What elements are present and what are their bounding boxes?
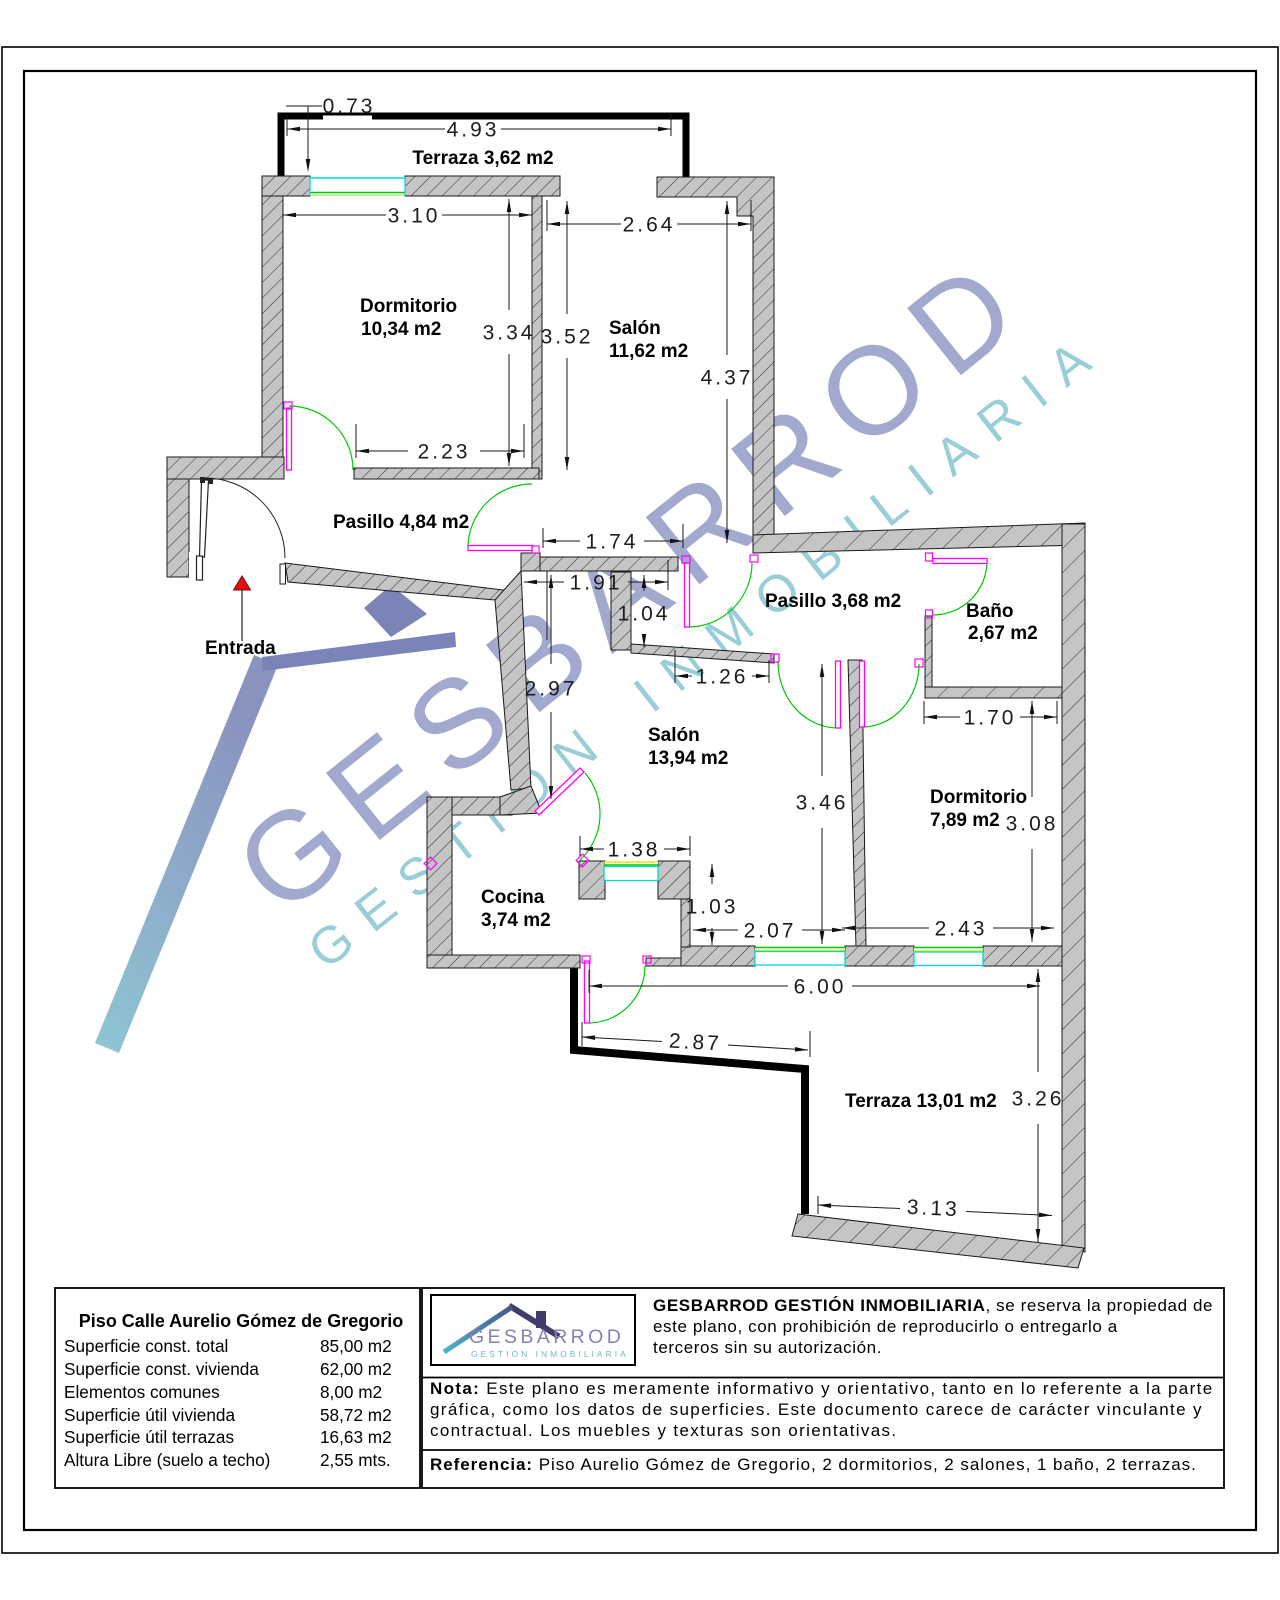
svg-text:Dormitorio: Dormitorio xyxy=(930,787,1027,808)
svg-text:1.04: 1.04 xyxy=(618,603,671,626)
svg-text:1.03: 1.03 xyxy=(686,896,739,919)
svg-text:Dormitorio: Dormitorio xyxy=(360,296,457,317)
svg-text:2.64: 2.64 xyxy=(623,214,676,237)
svg-text:85,00 m2: 85,00 m2 xyxy=(320,1336,392,1356)
svg-text:Superficie const. total: Superficie const. total xyxy=(64,1336,228,1356)
svg-text:3.46: 3.46 xyxy=(796,792,849,815)
svg-text:1.38: 1.38 xyxy=(608,839,661,862)
svg-text:2.97: 2.97 xyxy=(525,678,578,701)
svg-text:3.08: 3.08 xyxy=(1006,813,1059,836)
svg-text:2.87: 2.87 xyxy=(668,1030,722,1056)
svg-text:2.07: 2.07 xyxy=(744,920,797,943)
svg-text:Baño: Baño xyxy=(966,601,1014,622)
svg-text:Salón: Salón xyxy=(648,725,700,746)
svg-text:3.34: 3.34 xyxy=(483,322,536,345)
svg-text:Salón: Salón xyxy=(609,318,661,339)
svg-text:3.13: 3.13 xyxy=(906,1196,960,1221)
svg-text:GESTIÓN INMOBILIARIA: GESTIÓN INMOBILIARIA xyxy=(471,1349,629,1359)
svg-text:GESBARROD GESTIÓN INMOBILIARIA: GESBARROD GESTIÓN INMOBILIARIA, se reser… xyxy=(653,1296,1213,1315)
svg-text:16,63 m2: 16,63 m2 xyxy=(320,1427,392,1447)
svg-text:Cocina: Cocina xyxy=(481,887,545,908)
svg-text:1.26: 1.26 xyxy=(696,666,749,689)
svg-text:este plano, con prohibición de: este plano, con prohibición de reproduci… xyxy=(653,1317,1118,1336)
svg-text:2,55 mts.: 2,55 mts. xyxy=(320,1450,391,1470)
svg-text:3.52: 3.52 xyxy=(541,326,594,349)
svg-text:Superficie útil vivienda: Superficie útil vivienda xyxy=(64,1405,235,1425)
svg-text:Terraza 13,01 m2: Terraza 13,01 m2 xyxy=(845,1091,997,1112)
svg-text:GESBARROD: GESBARROD xyxy=(469,1326,624,1348)
svg-text:Piso Calle Aurelio Gómez de Gr: Piso Calle Aurelio Gómez de Gregorio xyxy=(79,1311,403,1331)
svg-text:Superficie const. vivienda: Superficie const. vivienda xyxy=(64,1359,259,1379)
svg-text:8,00 m2: 8,00 m2 xyxy=(320,1382,382,1402)
svg-text:10,34 m2: 10,34 m2 xyxy=(361,319,441,340)
svg-text:Nota: Este plano es meramente: Nota: Este plano es meramente informativ… xyxy=(430,1379,1214,1398)
svg-text:0.73: 0.73 xyxy=(323,95,376,118)
svg-text:2,67 m2: 2,67 m2 xyxy=(968,623,1038,644)
svg-text:4.37: 4.37 xyxy=(701,367,754,390)
svg-text:Superficie útil terrazas: Superficie útil terrazas xyxy=(64,1427,234,1447)
svg-text:2.23: 2.23 xyxy=(418,441,471,464)
svg-text:13,94 m2: 13,94 m2 xyxy=(648,748,728,769)
svg-text:3,74 m2: 3,74 m2 xyxy=(481,910,551,931)
svg-text:Terraza 3,62 m2: Terraza 3,62 m2 xyxy=(412,148,553,169)
svg-text:1.74: 1.74 xyxy=(586,531,639,554)
svg-text:Pasillo 3,68 m2: Pasillo 3,68 m2 xyxy=(765,591,901,612)
svg-text:62,00 m2: 62,00 m2 xyxy=(320,1359,392,1379)
svg-text:58,72 m2: 58,72 m2 xyxy=(320,1405,392,1425)
svg-text:Pasillo 4,84 m2: Pasillo 4,84 m2 xyxy=(333,512,469,533)
svg-text:11,62 m2: 11,62 m2 xyxy=(609,341,688,362)
svg-text:7,89 m2: 7,89 m2 xyxy=(930,810,1000,831)
svg-text:Referencia: Piso Aurelio Gómez: Referencia: Piso Aurelio Gómez de Gregor… xyxy=(430,1455,1197,1474)
svg-text:1.70: 1.70 xyxy=(964,707,1017,730)
svg-text:gráfica, como los datos de sup: gráfica, como los datos de superficies. … xyxy=(430,1400,1203,1419)
svg-text:6.00: 6.00 xyxy=(794,976,847,999)
svg-text:Entrada: Entrada xyxy=(205,638,276,659)
svg-text:4.93: 4.93 xyxy=(447,119,500,142)
svg-text:terceros sin su autorización.: terceros sin su autorización. xyxy=(653,1338,882,1357)
svg-text:1.91: 1.91 xyxy=(570,572,623,595)
svg-text:3.10: 3.10 xyxy=(388,205,441,228)
svg-text:3.26: 3.26 xyxy=(1012,1088,1065,1111)
svg-text:Altura Libre (suelo a techo): Altura Libre (suelo a techo) xyxy=(64,1450,270,1470)
svg-text:2.43: 2.43 xyxy=(935,918,988,941)
svg-text:Elementos comunes: Elementos comunes xyxy=(64,1382,220,1402)
svg-text:contractual. Los muebles y tex: contractual. Los muebles y texturas son … xyxy=(430,1421,897,1440)
